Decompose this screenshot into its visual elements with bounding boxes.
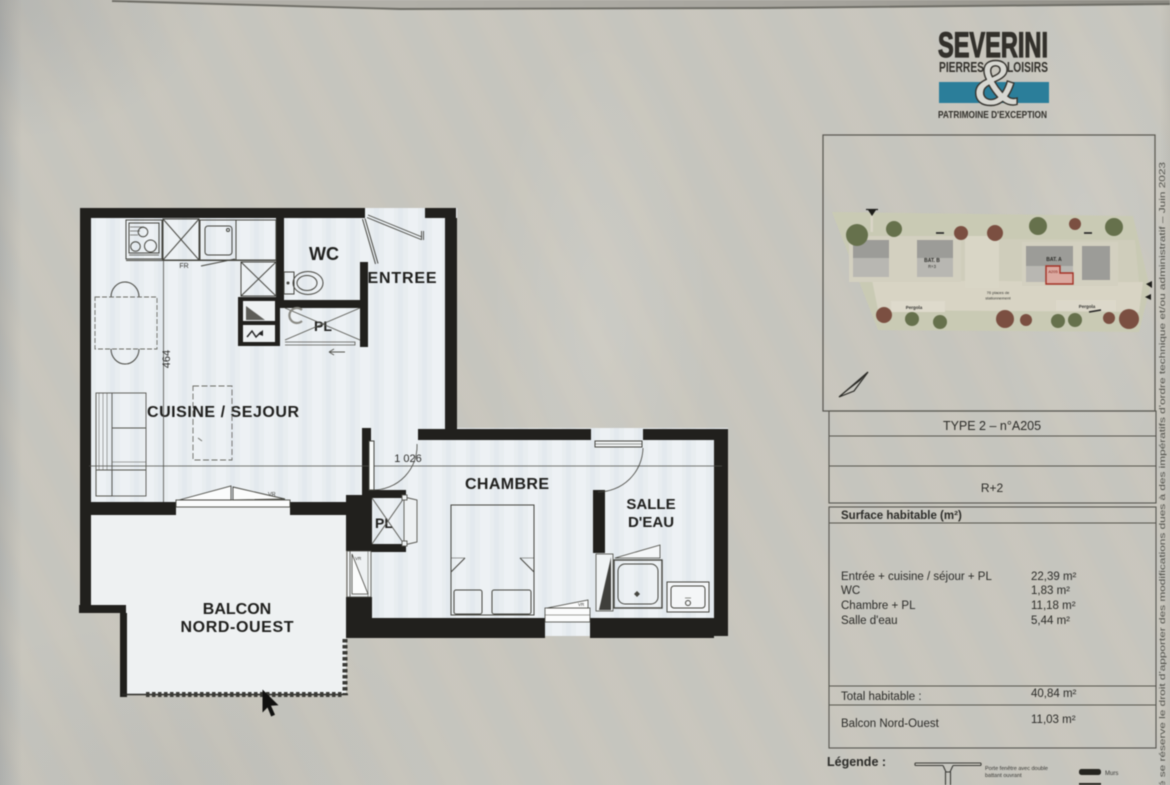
svg-text:Murs: Murs bbox=[1105, 771, 1118, 777]
svg-text:VR: VR bbox=[268, 492, 276, 498]
svg-text:NORD-OUEST: NORD-OUEST bbox=[181, 619, 294, 636]
svg-text:Total habitable :: Total habitable : bbox=[841, 691, 922, 703]
svg-text:A205: A205 bbox=[1048, 269, 1058, 274]
svg-text:WC: WC bbox=[841, 585, 860, 597]
svg-text:11,03 m²: 11,03 m² bbox=[1031, 714, 1076, 726]
svg-text:PATRIMOINE D'EXCEPTION: PATRIMOINE D'EXCEPTION bbox=[938, 110, 1047, 121]
svg-text:CUISINE / SEJOUR: CUISINE / SEJOUR bbox=[147, 404, 299, 421]
svg-text:ENTREE: ENTREE bbox=[368, 270, 437, 287]
svg-text:1,83 m²: 1,83 m² bbox=[1031, 585, 1070, 597]
svg-text:battant ouvrant: battant ouvrant bbox=[985, 773, 1022, 779]
svg-text:Surface habitable (m²): Surface habitable (m²) bbox=[841, 510, 962, 522]
svg-text:Salle d'eau: Salle d'eau bbox=[841, 615, 898, 627]
svg-text:FR: FR bbox=[179, 263, 188, 270]
svg-text:Entrée + cuisine / séjour + PL: Entrée + cuisine / séjour + PL bbox=[841, 571, 992, 583]
svg-text:WC: WC bbox=[309, 244, 339, 264]
svg-text:11,18 m²: 11,18 m² bbox=[1031, 600, 1076, 612]
svg-text:SALLE: SALLE bbox=[626, 496, 675, 513]
svg-text:1 026: 1 026 bbox=[394, 453, 422, 465]
svg-text:TYPE 2 – n°A205: TYPE 2 – n°A205 bbox=[943, 419, 1041, 433]
svg-text:BALCON: BALCON bbox=[203, 601, 271, 618]
svg-text:Légende :: Légende : bbox=[827, 755, 886, 769]
svg-text:CHAMBRE: CHAMBRE bbox=[465, 476, 549, 493]
svg-text:Porte fenêtre avec double: Porte fenêtre avec double bbox=[985, 766, 1048, 772]
svg-text:stationnement: stationnement bbox=[985, 296, 1011, 301]
svg-text:R+2: R+2 bbox=[981, 481, 1004, 495]
svg-text:5,44 m²: 5,44 m² bbox=[1031, 615, 1070, 627]
svg-text:D'EAU: D'EAU bbox=[628, 514, 674, 531]
svg-text:été se réserve le droit d'appo: été se réserve le droit d'apporter des m… bbox=[1157, 162, 1167, 785]
svg-text:22,39 m²: 22,39 m² bbox=[1031, 571, 1077, 583]
svg-text:76 places de: 76 places de bbox=[987, 290, 1010, 295]
svg-text:VR: VR bbox=[578, 602, 585, 607]
svg-text:Balcon Nord-Ouest: Balcon Nord-Ouest bbox=[841, 718, 940, 730]
svg-text:VR: VR bbox=[355, 556, 362, 561]
svg-text:Pergola: Pergola bbox=[906, 305, 923, 310]
svg-text:BAT. A: BAT. A bbox=[1046, 257, 1062, 263]
svg-text:464: 464 bbox=[161, 350, 173, 368]
svg-text:R+3: R+3 bbox=[928, 264, 936, 269]
svg-text:&: & bbox=[973, 47, 1019, 119]
svg-text:Chambre + PL: Chambre + PL bbox=[841, 600, 916, 612]
svg-text:Pergola: Pergola bbox=[1079, 304, 1096, 309]
svg-text:40,84 m²: 40,84 m² bbox=[1031, 688, 1077, 700]
